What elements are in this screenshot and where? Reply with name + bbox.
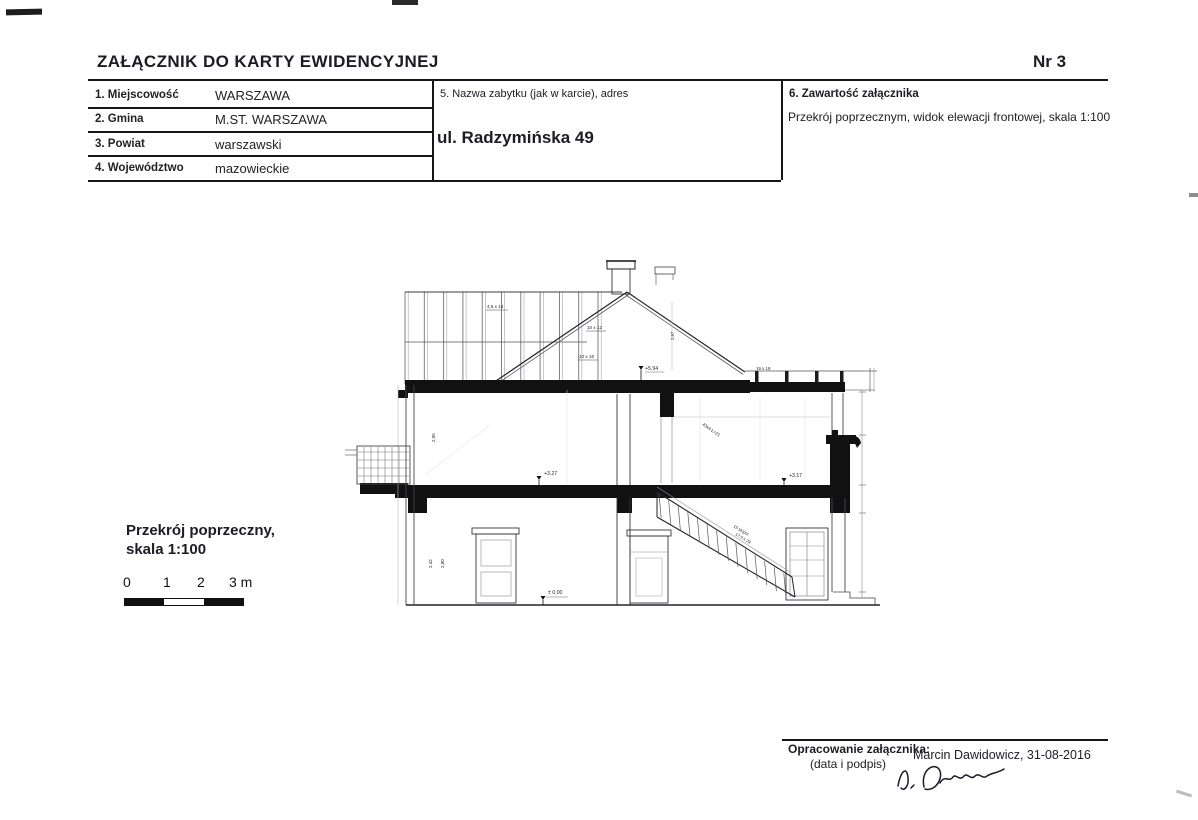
level-floor-right: +3.17 xyxy=(789,473,802,479)
field-value-powiat: warszawski xyxy=(215,137,281,152)
scale-tick-3: 3 m xyxy=(229,574,252,590)
scale-bar-segment xyxy=(163,598,204,606)
field-value-wojewodztwo: mazowieckie xyxy=(215,161,289,176)
level-ground: ± 0.00 xyxy=(548,590,562,596)
floor-slabs xyxy=(360,380,845,513)
scan-artifact xyxy=(1189,193,1198,197)
header-rule xyxy=(88,79,1108,81)
dim-ground-1: 2,42 xyxy=(428,559,433,568)
table-rule xyxy=(88,180,781,182)
field-label-wojewodztwo: 4. Województwo xyxy=(95,162,184,174)
field-value-miejscowosc: WARSZAWA xyxy=(215,88,290,103)
timber-note-joist: 19 x 18 xyxy=(756,366,771,371)
staircase xyxy=(657,487,795,597)
table-divider xyxy=(781,80,783,180)
door-left xyxy=(472,528,519,603)
table-divider xyxy=(432,80,434,180)
timber-note-purlin: 10 x 12 xyxy=(587,325,603,330)
door-middle xyxy=(627,530,671,603)
drawing-caption: Przekrój poprzeczny, skala 1:100 xyxy=(126,521,275,559)
field-label-zawartosc: 6. Zawartość załącznika xyxy=(789,88,919,100)
caption-line2: skala 1:100 xyxy=(126,540,275,559)
door-right xyxy=(786,528,828,600)
footer-sublabel: (data i podpis) xyxy=(810,757,886,771)
scale-bar-segment xyxy=(205,598,244,606)
beam-note: 43x4 Ł=21 xyxy=(701,422,721,438)
scan-artifact xyxy=(1176,790,1192,798)
scanned-document-page: ZAŁĄCZNIK DO KARTY EWIDENCYJNEJ Nr 3 1. … xyxy=(0,0,1198,820)
handwritten-signature xyxy=(890,756,1020,800)
field-value-zawartosc: Przekrój poprzecznym, widok elewacji fro… xyxy=(788,110,1110,124)
footer-rule xyxy=(782,739,1108,741)
field-label-gmina: 2. Gmina xyxy=(95,113,144,125)
field-value-address: ul. Radzymińska 49 xyxy=(437,128,594,148)
faint-lines xyxy=(398,302,866,605)
field-label-miejscowosc: 1. Miejscowość xyxy=(95,89,179,101)
table-rule xyxy=(88,131,432,133)
annotations: +5.94 +3.27 +3.17 ± 0.00 4,5 x 14 10 x 1… xyxy=(428,304,802,596)
table-rule xyxy=(88,155,432,157)
caption-line1: Przekrój poprzeczny, xyxy=(126,521,275,540)
chimney xyxy=(606,261,675,294)
scale-tick-1: 1 xyxy=(163,574,171,590)
table-rule xyxy=(88,107,432,109)
balcony xyxy=(345,446,410,484)
footer-label: Opracowanie załącznika: xyxy=(788,742,930,756)
dim-ground-2: 2,80 xyxy=(440,559,445,568)
field-label-nazwa-zabytku: 5. Nazwa zabytku (jak w karcie), adres xyxy=(440,88,628,100)
scan-artifact xyxy=(392,0,418,5)
dim-room-height: 2,95 xyxy=(431,433,436,442)
scan-artifact xyxy=(6,9,42,16)
level-attic: +5.94 xyxy=(645,366,658,372)
roof-slopes xyxy=(490,292,745,388)
scale-tick-0: 0 xyxy=(123,574,131,590)
dim-roof: 2,97 xyxy=(670,331,675,340)
page-title: ZAŁĄCZNIK DO KARTY EWIDENCYJNEJ xyxy=(97,52,439,72)
field-value-gmina: M.ST. WARSZAWA xyxy=(215,112,327,127)
timber-note-tie: 10 x 16 xyxy=(579,354,595,359)
field-label-powiat: 3. Powiat xyxy=(95,138,145,150)
cross-section-drawing: +5.94 +3.27 +3.17 ± 0.00 4,5 x 14 10 x 1… xyxy=(340,240,900,625)
right-wall xyxy=(826,393,875,605)
scale-tick-2: 2 xyxy=(197,574,205,590)
level-floor-left: +3.27 xyxy=(544,471,557,477)
scale-bar xyxy=(124,598,244,606)
timber-note-gable: 4,5 x 14 xyxy=(487,304,504,309)
attachment-number: Nr 3 xyxy=(1033,52,1066,72)
scale-bar-segment xyxy=(124,598,163,606)
